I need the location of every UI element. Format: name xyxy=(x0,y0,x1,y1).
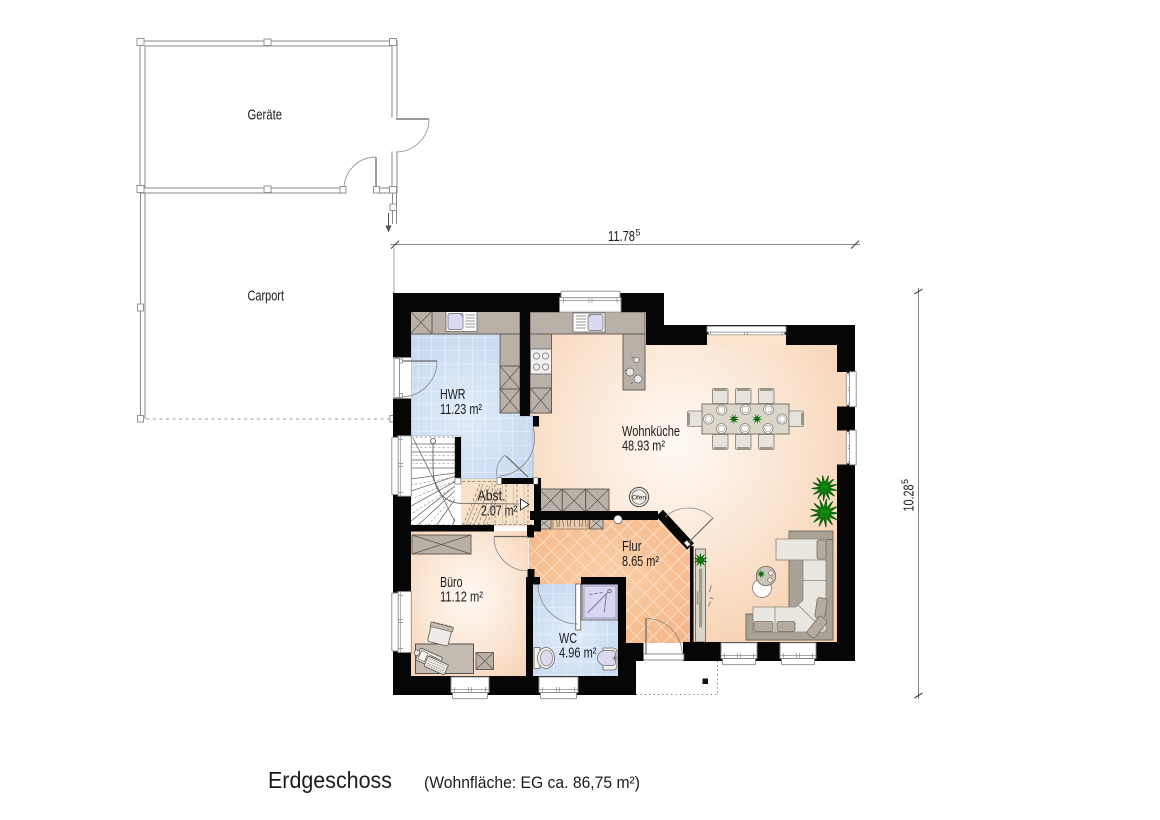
svg-text:HWR: HWR xyxy=(440,387,466,403)
svg-text:48.93 m²: 48.93 m² xyxy=(622,439,665,455)
svg-text:(Wohnfläche: EG ca. 86,75 m²): (Wohnfläche: EG ca. 86,75 m²) xyxy=(424,774,640,792)
svg-text:5: 5 xyxy=(900,479,910,484)
svg-text:11.12 m²: 11.12 m² xyxy=(440,590,483,606)
svg-text:Flur: Flur xyxy=(622,539,642,555)
svg-text:Ofen: Ofen xyxy=(632,495,646,502)
svg-text:Carport: Carport xyxy=(248,289,285,305)
svg-text:Erdgeschoss: Erdgeschoss xyxy=(268,767,392,793)
svg-text:4.96 m²: 4.96 m² xyxy=(559,646,597,662)
svg-text:5: 5 xyxy=(636,228,641,238)
svg-text:Abst.: Abst. xyxy=(478,489,506,505)
svg-text:8.65 m²: 8.65 m² xyxy=(622,554,659,570)
svg-text:WC: WC xyxy=(559,631,577,647)
svg-text:11.23 m²: 11.23 m² xyxy=(440,402,482,418)
svg-text:10.28: 10.28 xyxy=(901,485,918,512)
svg-text:2.07 m²: 2.07 m² xyxy=(481,504,517,520)
svg-text:11.78: 11.78 xyxy=(608,228,635,245)
svg-text:Geräte: Geräte xyxy=(248,108,283,124)
